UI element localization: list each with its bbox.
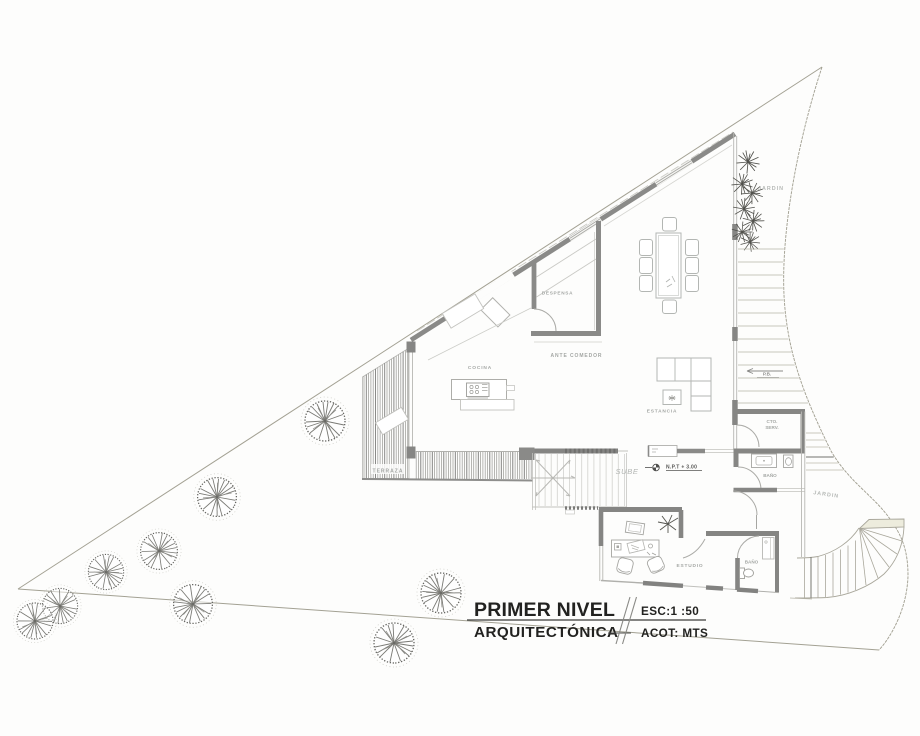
svg-text:COCINA: COCINA: [468, 365, 492, 371]
svg-text:ESC:1 :50: ESC:1 :50: [641, 605, 699, 618]
svg-text:N.P.T + 3.00: N.P.T + 3.00: [666, 465, 697, 471]
svg-text:ARQUITECTÓNICA: ARQUITECTÓNICA: [474, 623, 619, 641]
svg-text:BAÑO: BAÑO: [763, 472, 777, 478]
svg-text:ESTANCIA: ESTANCIA: [647, 409, 678, 415]
svg-text:JARDIN: JARDIN: [758, 186, 784, 192]
svg-text:ACOT: MTS: ACOT: MTS: [641, 627, 708, 640]
svg-text:P.B.: P.B.: [763, 372, 771, 377]
svg-text:ANTE COMEDOR: ANTE COMEDOR: [551, 353, 603, 359]
svg-text:DESPENSA: DESPENSA: [542, 291, 573, 296]
svg-text:PRIMER NIVEL: PRIMER NIVEL: [474, 599, 615, 621]
svg-text:SUBE: SUBE: [615, 467, 638, 476]
svg-text:BAÑO: BAÑO: [745, 559, 759, 565]
svg-text:TERRAZA: TERRAZA: [373, 469, 404, 475]
svg-text:ESTUDIO: ESTUDIO: [677, 563, 704, 569]
svg-text:SERV.: SERV.: [765, 425, 778, 430]
svg-text:CTO.: CTO.: [767, 419, 778, 424]
